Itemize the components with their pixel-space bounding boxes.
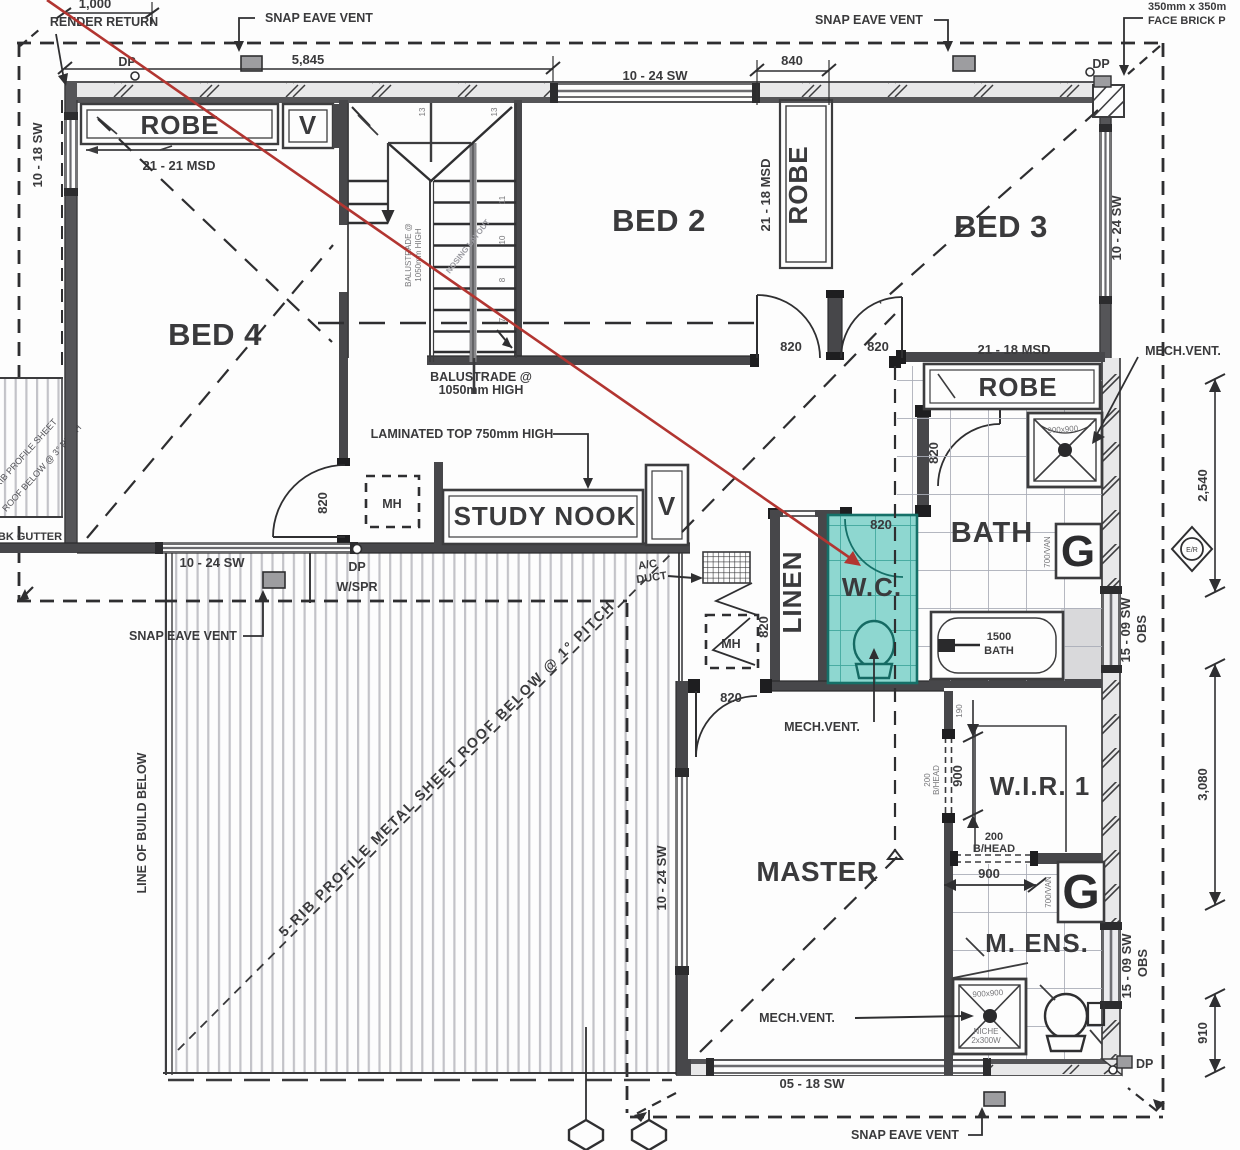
svg-text:1,000: 1,000 xyxy=(79,0,112,11)
svg-text:G: G xyxy=(1061,527,1095,576)
svg-text:10 - 24 SW: 10 - 24 SW xyxy=(1109,195,1124,261)
svg-text:10 - 24 SW: 10 - 24 SW xyxy=(654,845,669,911)
svg-text:SNAP EAVE VENT: SNAP EAVE VENT xyxy=(851,1128,959,1142)
svg-text:BATH: BATH xyxy=(951,517,1033,549)
svg-text:10 - 18 SW: 10 - 18 SW xyxy=(30,122,45,188)
svg-text:820: 820 xyxy=(720,690,742,705)
svg-text:15 - 09 SW: 15 - 09 SW xyxy=(1119,933,1134,999)
svg-text:OBS: OBS xyxy=(1134,615,1149,644)
svg-text:820: 820 xyxy=(867,339,889,354)
svg-text:OBS: OBS xyxy=(1135,949,1150,978)
svg-text:10: 10 xyxy=(498,235,507,244)
svg-text:1050mm HIGH: 1050mm HIGH xyxy=(439,383,524,397)
svg-text:820: 820 xyxy=(780,339,802,354)
svg-text:05 - 18 SW: 05 - 18 SW xyxy=(779,1076,845,1091)
svg-text:10 - 24 SW: 10 - 24 SW xyxy=(622,68,688,83)
svg-text:BK GUTTER: BK GUTTER xyxy=(0,531,62,543)
svg-text:900: 900 xyxy=(950,765,965,787)
svg-text:STUDY NOOK: STUDY NOOK xyxy=(454,501,637,531)
svg-text:840: 840 xyxy=(781,53,803,68)
svg-text:BED 2: BED 2 xyxy=(612,203,706,238)
svg-text:ROBE: ROBE xyxy=(140,110,219,140)
svg-text:8: 8 xyxy=(498,277,507,282)
svg-text:190: 190 xyxy=(955,704,964,718)
svg-text:1500: 1500 xyxy=(987,631,1011,643)
svg-text:BALUSTRADE @: BALUSTRADE @ xyxy=(430,370,532,384)
svg-text:820: 820 xyxy=(756,616,771,638)
svg-text:MH: MH xyxy=(382,497,401,511)
svg-text:W.I.R. 1: W.I.R. 1 xyxy=(990,771,1090,801)
svg-text:BED 3: BED 3 xyxy=(954,209,1048,244)
svg-text:820: 820 xyxy=(315,492,330,514)
svg-text:21 - 18 MSD: 21 - 18 MSD xyxy=(978,342,1051,357)
svg-text:ROBE: ROBE xyxy=(783,145,813,224)
svg-text:13: 13 xyxy=(418,107,427,116)
svg-text:MECH.VENT.: MECH.VENT. xyxy=(784,720,860,734)
svg-text:3,080: 3,080 xyxy=(1195,768,1210,801)
svg-text:W/SPR: W/SPR xyxy=(337,580,378,594)
svg-text:21 - 18 MSD: 21 - 18 MSD xyxy=(758,159,773,232)
svg-text:5,845: 5,845 xyxy=(292,52,325,67)
svg-text:G: G xyxy=(1062,866,1099,919)
svg-text:200: 200 xyxy=(923,773,932,787)
svg-text:13: 13 xyxy=(490,107,499,116)
svg-text:10 - 24 SW: 10 - 24 SW xyxy=(179,555,245,570)
svg-text:DP: DP xyxy=(1092,57,1109,71)
svg-text:MH: MH xyxy=(721,637,740,651)
svg-text:MECH.VENT.: MECH.VENT. xyxy=(759,1011,835,1025)
svg-text:DP: DP xyxy=(1136,1057,1153,1071)
svg-text:SNAP EAVE VENT: SNAP EAVE VENT xyxy=(815,13,923,27)
svg-text:LINEN: LINEN xyxy=(777,551,807,634)
svg-text:SNAP EAVE VENT: SNAP EAVE VENT xyxy=(129,629,237,643)
svg-text:SNAP EAVE VENT: SNAP EAVE VENT xyxy=(265,11,373,25)
svg-text:2,540: 2,540 xyxy=(1195,469,1210,502)
svg-text:11: 11 xyxy=(498,195,507,204)
svg-text:200: 200 xyxy=(985,831,1003,843)
svg-text:900: 900 xyxy=(978,866,1000,881)
svg-text:B/HEAD: B/HEAD xyxy=(973,843,1015,855)
svg-text:350mm x 350m: 350mm x 350m xyxy=(1148,1,1226,13)
svg-text:NICHE: NICHE xyxy=(974,1027,999,1036)
svg-text:820: 820 xyxy=(870,517,892,532)
svg-text:MECH.VENT.: MECH.VENT. xyxy=(1145,344,1221,358)
svg-text:FACE BRICK P: FACE BRICK P xyxy=(1148,15,1226,27)
svg-text:2x300W: 2x300W xyxy=(971,1036,1001,1045)
svg-text:LINE OF BUILD BELOW: LINE OF BUILD BELOW xyxy=(135,752,149,893)
svg-text:700/VAN: 700/VAN xyxy=(1044,876,1053,908)
svg-text:15 - 09 SW: 15 - 09 SW xyxy=(1118,597,1133,663)
svg-text:M. ENS.: M. ENS. xyxy=(985,928,1089,958)
svg-text:DP: DP xyxy=(348,560,365,574)
svg-text:21 - 21 MSD: 21 - 21 MSD xyxy=(143,158,216,173)
svg-text:ROBE: ROBE xyxy=(978,372,1057,402)
svg-text:W.C.: W.C. xyxy=(842,572,902,602)
svg-text:V: V xyxy=(658,491,676,521)
svg-text:E/R: E/R xyxy=(1186,547,1198,554)
svg-text:BATH: BATH xyxy=(984,645,1014,657)
svg-text:BALUSTRADE @: BALUSTRADE @ xyxy=(404,223,413,287)
svg-text:RENDER RETURN: RENDER RETURN xyxy=(50,15,158,29)
svg-text:700/VAN: 700/VAN xyxy=(1043,536,1052,568)
svg-text:BED 4: BED 4 xyxy=(168,317,262,352)
svg-text:MASTER: MASTER xyxy=(756,856,877,887)
svg-text:B/HEAD: B/HEAD xyxy=(932,765,941,795)
svg-text:LAMINATED TOP 750mm HIGH: LAMINATED TOP 750mm HIGH xyxy=(371,427,554,441)
svg-text:V: V xyxy=(299,110,317,140)
svg-text:910: 910 xyxy=(1195,1022,1210,1044)
